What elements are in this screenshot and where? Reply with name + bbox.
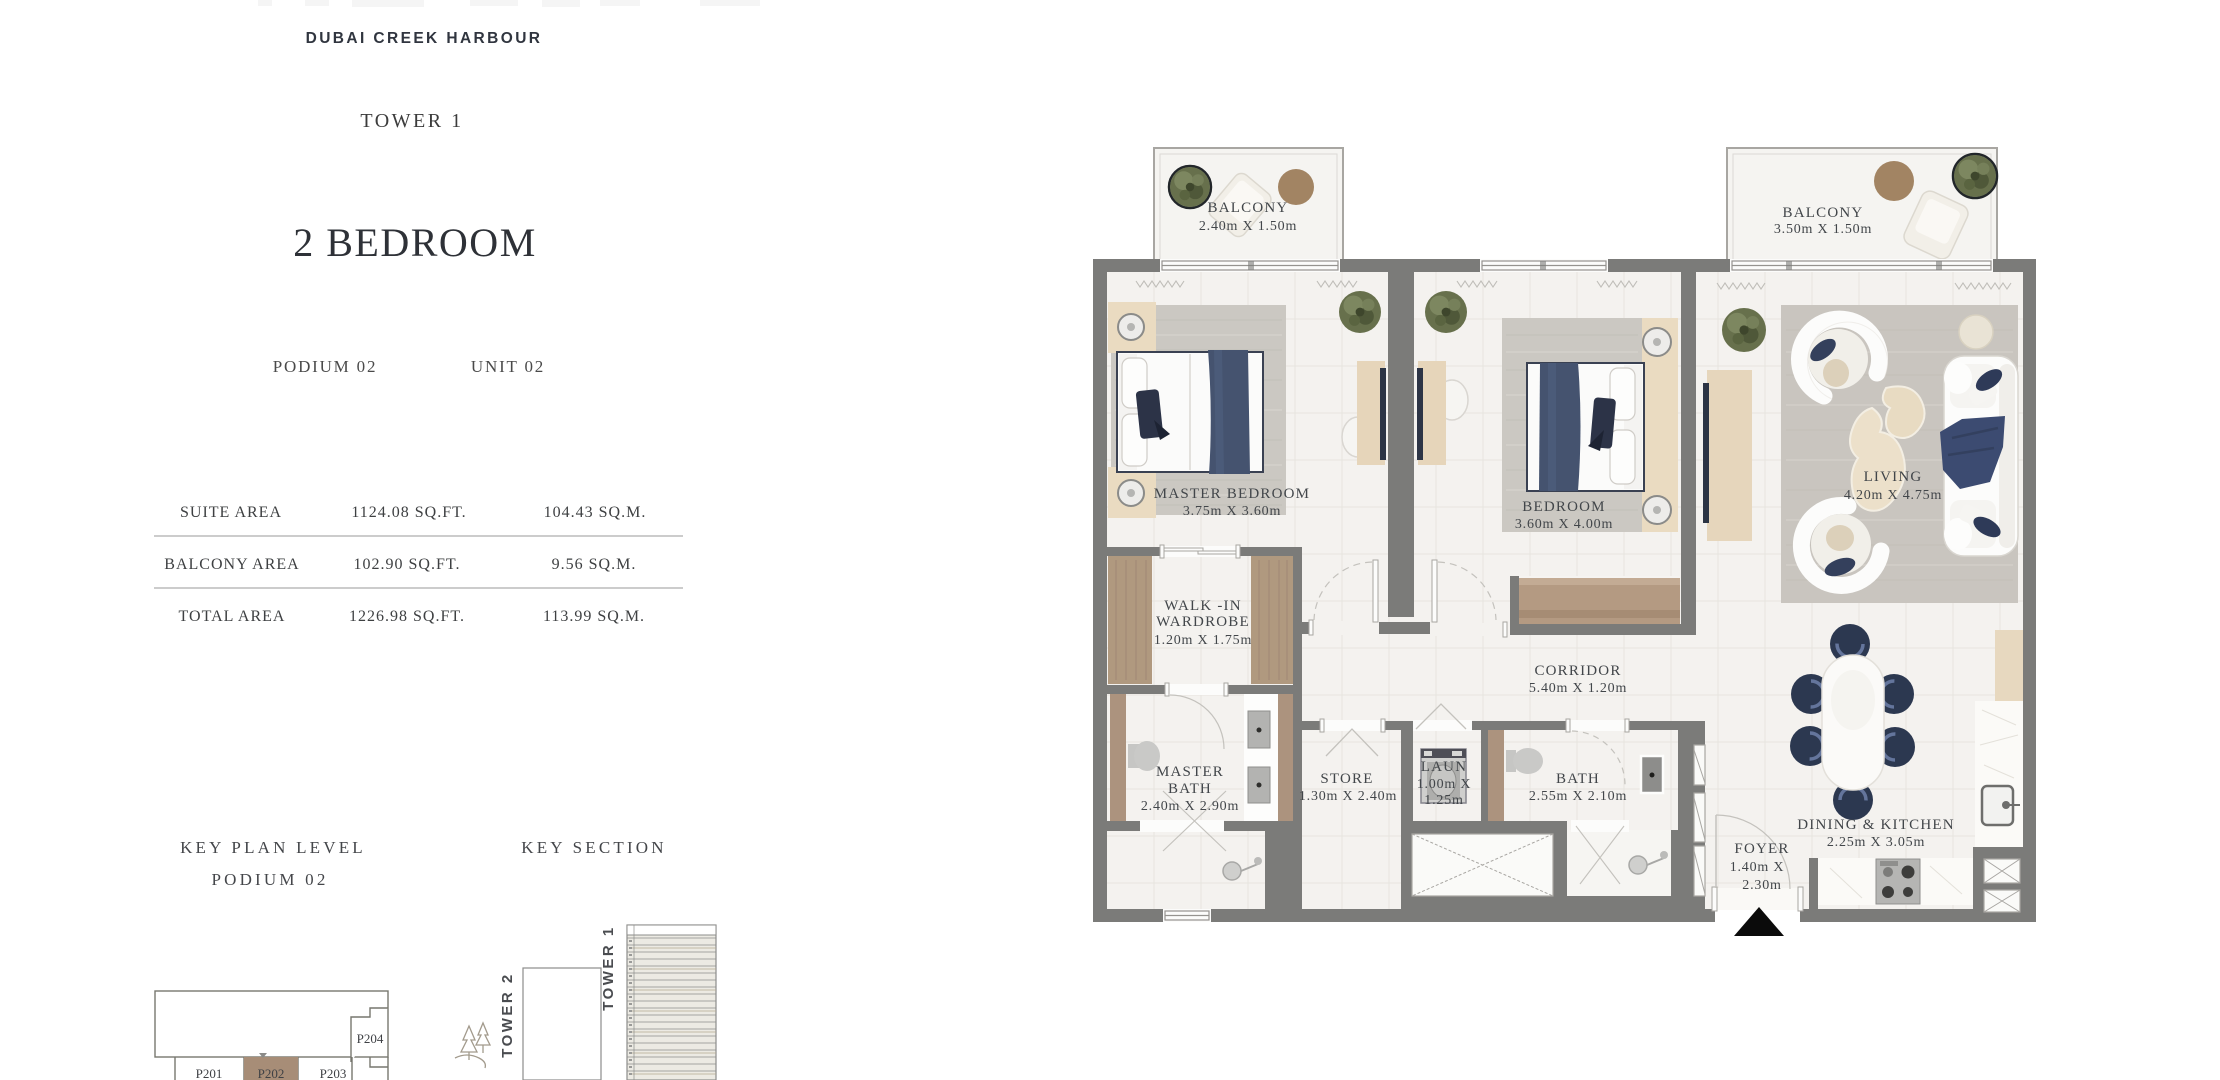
svg-text:TOWER 1: TOWER 1 <box>360 110 463 132</box>
svg-text:SUITE AREA: SUITE AREA <box>180 504 282 521</box>
svg-text:PODIUM 02: PODIUM 02 <box>273 357 378 376</box>
svg-text:TOWER 2: TOWER 2 <box>499 972 516 1058</box>
svg-text:BEDROOM: BEDROOM <box>1522 499 1605 515</box>
svg-text:UNIT 02: UNIT 02 <box>471 357 545 376</box>
svg-text:2 BEDROOM: 2 BEDROOM <box>293 220 537 265</box>
svg-text:2.40m X 2.90m: 2.40m X 2.90m <box>1141 799 1239 814</box>
svg-text:BATH: BATH <box>1168 781 1212 797</box>
svg-text:DUBAI CREEK HARBOUR: DUBAI CREEK HARBOUR <box>306 30 543 47</box>
svg-text:9.56 SQ.M.: 9.56 SQ.M. <box>552 556 637 573</box>
svg-text:1226.98 SQ.FT.: 1226.98 SQ.FT. <box>349 608 465 625</box>
svg-text:2.25m X 3.05m: 2.25m X 3.05m <box>1827 835 1925 850</box>
svg-text:1124.08 SQ.FT.: 1124.08 SQ.FT. <box>351 504 466 521</box>
svg-text:MASTER: MASTER <box>1156 764 1224 780</box>
svg-text:2.40m X 1.50m: 2.40m X 1.50m <box>1199 219 1297 234</box>
svg-text:P203: P203 <box>320 1066 347 1080</box>
svg-text:4.20m X 4.75m: 4.20m X 4.75m <box>1844 488 1942 503</box>
svg-text:2.30m: 2.30m <box>1742 878 1781 893</box>
svg-text:BALCONY: BALCONY <box>1783 205 1864 221</box>
svg-text:P201: P201 <box>196 1066 223 1080</box>
svg-text:BALCONY: BALCONY <box>1208 200 1289 216</box>
svg-text:DINING & KITCHEN: DINING & KITCHEN <box>1797 817 1955 833</box>
svg-text:TOWER 1: TOWER 1 <box>600 925 617 1011</box>
svg-text:FOYER: FOYER <box>1734 841 1789 857</box>
svg-text:WARDROBE: WARDROBE <box>1156 614 1250 630</box>
svg-text:P204: P204 <box>357 1031 384 1046</box>
svg-text:KEY PLAN LEVEL: KEY PLAN LEVEL <box>180 838 366 857</box>
svg-text:P202: P202 <box>258 1066 285 1080</box>
svg-text:1.40m X: 1.40m X <box>1730 860 1785 875</box>
svg-text:BATH: BATH <box>1556 771 1600 787</box>
svg-text:104.43 SQ.M.: 104.43 SQ.M. <box>544 504 647 521</box>
svg-text:KEY SECTION: KEY SECTION <box>521 838 667 857</box>
svg-text:3.50m X 1.50m: 3.50m X 1.50m <box>1774 222 1872 237</box>
svg-text:CORRIDOR: CORRIDOR <box>1534 663 1621 679</box>
svg-text:3.75m X 3.60m: 3.75m X 3.60m <box>1183 504 1281 519</box>
svg-text:5.40m X 1.20m: 5.40m X 1.20m <box>1529 681 1627 696</box>
svg-text:LAUN: LAUN <box>1421 759 1467 775</box>
svg-text:113.99 SQ.M.: 113.99 SQ.M. <box>543 608 645 625</box>
svg-text:PODIUM 02: PODIUM 02 <box>211 870 328 889</box>
svg-text:LIVING: LIVING <box>1864 469 1923 485</box>
svg-text:1.25m: 1.25m <box>1424 793 1463 808</box>
svg-text:STORE: STORE <box>1320 771 1373 787</box>
svg-text:TOTAL AREA: TOTAL AREA <box>179 608 286 625</box>
svg-text:BALCONY AREA: BALCONY AREA <box>164 556 299 573</box>
svg-text:1.20m X 1.75m: 1.20m X 1.75m <box>1154 633 1252 648</box>
svg-text:102.90 SQ.FT.: 102.90 SQ.FT. <box>354 556 461 573</box>
svg-text:2.55m X 2.10m: 2.55m X 2.10m <box>1529 789 1627 804</box>
svg-text:3.60m X 4.00m: 3.60m X 4.00m <box>1515 517 1613 532</box>
svg-text:MASTER BEDROOM: MASTER BEDROOM <box>1154 486 1310 502</box>
svg-text:WALK -IN: WALK -IN <box>1164 598 1242 614</box>
svg-text:1.00m X: 1.00m X <box>1417 777 1472 792</box>
svg-text:1.30m X 2.40m: 1.30m X 2.40m <box>1299 789 1397 804</box>
